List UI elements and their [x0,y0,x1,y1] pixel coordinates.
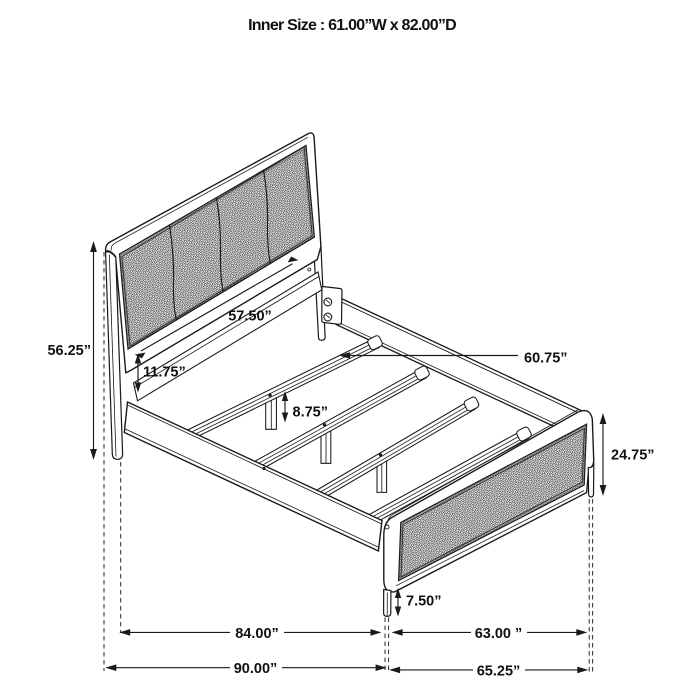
svg-text:65.25”: 65.25” [477,663,521,679]
svg-text:7.50”: 7.50” [406,594,441,610]
svg-text:57.50”: 57.50” [228,309,272,325]
svg-text:11.75”: 11.75” [143,365,186,381]
svg-text:24.75”: 24.75” [611,448,655,464]
svg-text:63.00 ”: 63.00 ” [475,626,523,642]
svg-text:Inner Size : 61.00”W x 82.00”D: Inner Size : 61.00”W x 82.00”D [248,17,456,34]
svg-text:8.75”: 8.75” [293,405,328,421]
svg-text:60.75”: 60.75” [524,351,568,367]
svg-text:90.00”: 90.00” [234,661,278,677]
svg-text:84.00”: 84.00” [235,626,279,642]
svg-text:56.25”: 56.25” [47,343,91,359]
